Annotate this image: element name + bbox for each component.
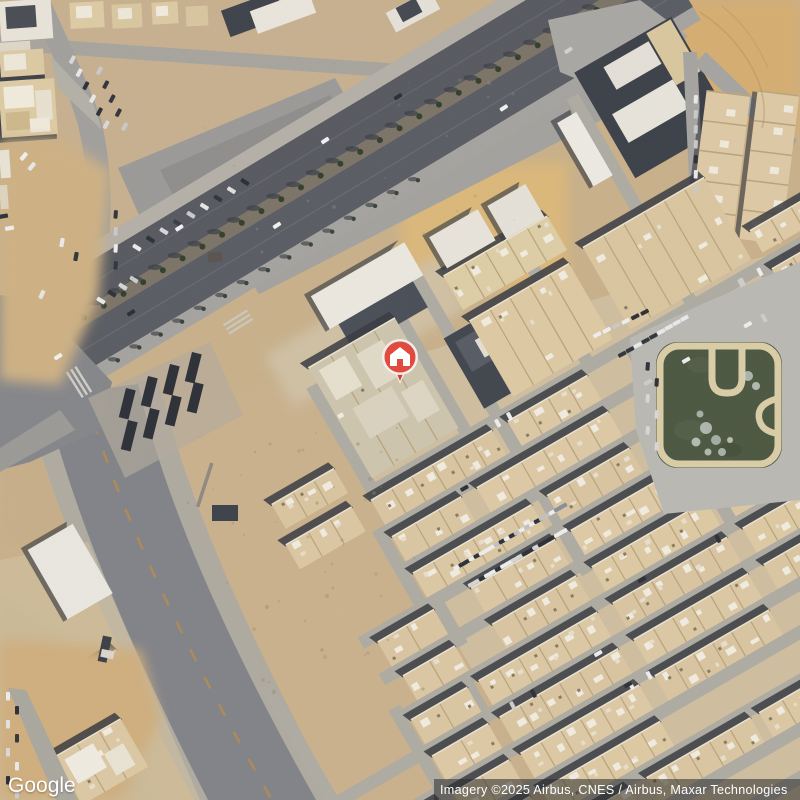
svg-text:Google: Google xyxy=(8,774,76,797)
svg-text:Imagery ©2025 Airbus, CNES / A: Imagery ©2025 Airbus, CNES / Airbus, Max… xyxy=(440,783,788,797)
